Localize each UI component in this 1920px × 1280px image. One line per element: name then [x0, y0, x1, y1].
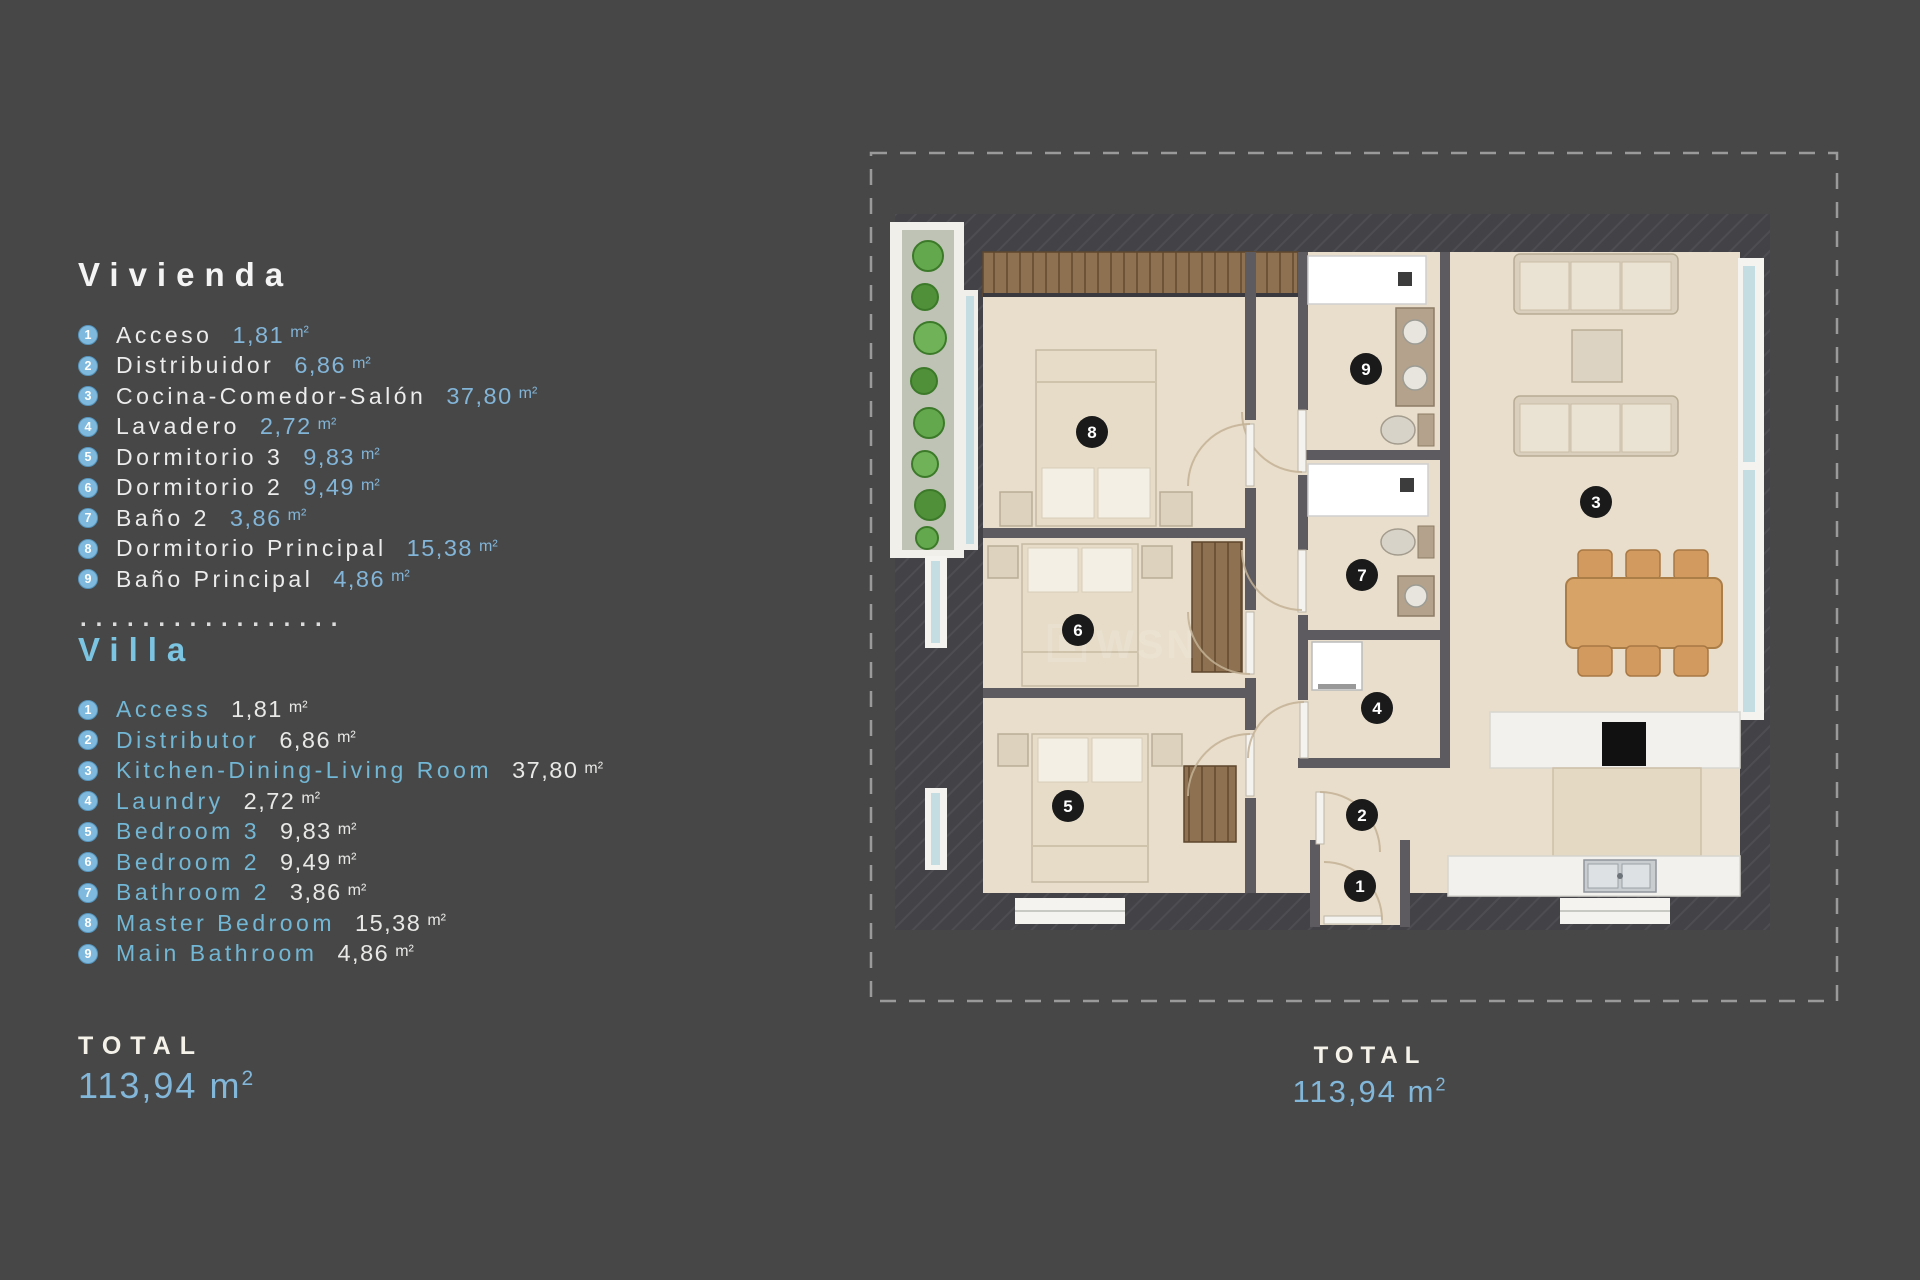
room-label: Laundry [116, 788, 224, 815]
wardrobe-hall-1 [1192, 542, 1242, 672]
room-label: Access [116, 696, 211, 723]
area-unit: m² [584, 760, 603, 778]
list-item: 4Lavadero2,72m² [78, 412, 738, 443]
total-label: TOTAL [78, 1032, 255, 1061]
pillow [1092, 738, 1142, 782]
area-unit: m² [318, 416, 337, 434]
washing-machine-door [1318, 684, 1356, 689]
sofa-cushion [1520, 262, 1569, 310]
room-label: Master Bedroom [116, 910, 335, 937]
room-area: 9,83 [280, 818, 332, 845]
area-unit: m² [288, 507, 307, 525]
list-item: 4Laundry2,72m² [78, 786, 738, 817]
wardrobe-hall-2 [1184, 766, 1236, 842]
room-marker-8: 8 [1076, 416, 1108, 448]
pillow [1082, 548, 1132, 592]
svg-text:7: 7 [1357, 566, 1366, 585]
room-area: 9,49 [303, 474, 355, 501]
list-item: 1Access1,81m² [78, 695, 738, 726]
number-badge: 5 [78, 447, 98, 467]
list-item: 9Main Bathroom4,86m² [78, 939, 738, 970]
room-label: Distribuidor [116, 352, 274, 379]
room-area: 9,83 [303, 444, 355, 471]
svg-text:9: 9 [1361, 360, 1370, 379]
room-area: 15,38 [355, 910, 421, 937]
shower-drain [1398, 272, 1412, 286]
area-unit: m² [479, 538, 498, 556]
toilet-tank [1418, 414, 1434, 446]
legend-panel: Vivienda 1Acceso1,81m² 2Distribuidor6,86… [78, 256, 738, 969]
dotted-separator: ................. [80, 605, 738, 631]
room-area: 6,86 [294, 352, 346, 379]
area-unit: m² [361, 446, 380, 464]
nightstand [1142, 546, 1172, 578]
sofa-cushion [1571, 404, 1620, 452]
nightstand [998, 734, 1028, 766]
list-item: 3Kitchen-Dining-Living Room37,80m² [78, 756, 738, 787]
room-marker-3: 3 [1580, 486, 1612, 518]
washing-machine [1312, 642, 1362, 690]
room-area: 1,81 [231, 696, 283, 723]
room-label: Cocina-Comedor-Salón [116, 383, 426, 410]
svg-text:2: 2 [1357, 806, 1366, 825]
list-item: 8Dormitorio Principal15,38m² [78, 534, 738, 565]
number-badge: 4 [78, 417, 98, 437]
chair [1578, 646, 1612, 676]
sofa-cushion [1622, 404, 1671, 452]
number-badge: 6 [78, 478, 98, 498]
svg-text:3: 3 [1591, 493, 1600, 512]
room-label: Main Bathroom [116, 940, 317, 967]
room-marker-6: 6 [1062, 614, 1094, 646]
number-badge: 7 [78, 508, 98, 528]
villa-list: 1Access1,81m² 2Distributor6,86m² 3Kitche… [78, 695, 738, 970]
room-area: 37,80 [512, 757, 578, 784]
room-area: 3,86 [230, 505, 282, 532]
list-item: 1Acceso1,81m² [78, 320, 738, 351]
room-area: 6,86 [279, 727, 331, 754]
chair [1674, 646, 1708, 676]
villa-title: Villa [78, 631, 738, 669]
number-badge: 9 [78, 569, 98, 589]
room-marker-5: 5 [1052, 790, 1084, 822]
room-label: Distributor [116, 727, 259, 754]
room-label: Dormitorio 3 [116, 444, 283, 471]
number-badge: 3 [78, 386, 98, 406]
room-label: Bedroom 2 [116, 849, 260, 876]
nightstand [1000, 492, 1032, 526]
kitchen-bar [1553, 768, 1701, 856]
total-value: 113,94 m2 [1280, 1074, 1460, 1110]
pillow [1042, 468, 1094, 518]
sink-basin [1622, 864, 1650, 888]
list-item: 2Distribuidor6,86m² [78, 351, 738, 382]
list-item: 7Bathroom 23,86m² [78, 878, 738, 909]
area-unit: m² [352, 355, 371, 373]
vivienda-list: 1Acceso1,81m² 2Distribuidor6,86m² 3Cocin… [78, 320, 738, 595]
page-background: Vivienda 1Acceso1,81m² 2Distribuidor6,86… [0, 0, 1920, 1280]
total-plan: TOTAL 113,94 m2 [1280, 1042, 1460, 1110]
list-item: 8Master Bedroom15,38m² [78, 908, 738, 939]
room-label: Baño Principal [116, 566, 313, 593]
number-badge: 2 [78, 356, 98, 376]
pillow [1028, 548, 1078, 592]
coffee-table [1572, 330, 1622, 382]
dining-set [1566, 550, 1722, 676]
room-label: Dormitorio 2 [116, 474, 283, 501]
toilet [1381, 529, 1415, 555]
sink [1403, 320, 1427, 344]
total-label: TOTAL [1280, 1042, 1460, 1070]
number-badge: 3 [78, 761, 98, 781]
list-item: 2Distributor6,86m² [78, 725, 738, 756]
room-label: Kitchen-Dining-Living Room [116, 757, 492, 784]
room-area: 2,72 [244, 788, 296, 815]
floor-plan: WSN 1 2 3 4 5 6 7 8 9 [850, 140, 1860, 1020]
nightstand [1152, 734, 1182, 766]
nightstand [1160, 492, 1192, 526]
number-badge: 8 [78, 539, 98, 559]
dining-table [1566, 578, 1722, 648]
faucet [1617, 873, 1623, 879]
sink-basin [1588, 864, 1618, 888]
room-label: Dormitorio Principal [116, 535, 387, 562]
number-badge: 9 [78, 944, 98, 964]
room-area: 4,86 [333, 566, 385, 593]
list-item: 6Dormitorio 29,49m² [78, 473, 738, 504]
svg-text:8: 8 [1087, 423, 1096, 442]
building: WSN 1 2 3 4 5 6 7 8 9 [890, 214, 1770, 930]
area-unit: m² [519, 385, 538, 403]
sink [1405, 585, 1427, 607]
total-left: TOTAL 113,94 m2 [78, 1032, 255, 1107]
area-unit: m² [338, 821, 357, 839]
area-unit: m² [338, 851, 357, 869]
vivienda-title: Vivienda [78, 256, 738, 294]
room-marker-1: 1 [1344, 870, 1376, 902]
number-badge: 5 [78, 822, 98, 842]
laundry-fixtures [1312, 642, 1362, 690]
toilet-tank [1418, 526, 1434, 558]
area-unit: m² [427, 912, 446, 930]
number-badge: 4 [78, 791, 98, 811]
shower-drain [1400, 478, 1414, 492]
area-unit: m² [395, 943, 414, 961]
room-marker-9: 9 [1350, 353, 1382, 385]
sofa-cushion [1520, 404, 1569, 452]
area-unit: m² [348, 882, 367, 900]
sink [1403, 366, 1427, 390]
room-label: Acceso [116, 322, 212, 349]
room-marker-2: 2 [1346, 799, 1378, 831]
room-label: Baño 2 [116, 505, 210, 532]
svg-text:1: 1 [1355, 877, 1364, 896]
room-label: Bathroom 2 [116, 879, 270, 906]
svg-text:6: 6 [1073, 621, 1082, 640]
nightstand [988, 546, 1018, 578]
number-badge: 6 [78, 852, 98, 872]
room-area: 15,38 [407, 535, 473, 562]
area-unit: m² [301, 790, 320, 808]
number-badge: 8 [78, 913, 98, 933]
room-area: 1,81 [232, 322, 284, 349]
list-item: 3Cocina-Comedor-Salón37,80m² [78, 381, 738, 412]
list-item: 6Bedroom 29,49m² [78, 847, 738, 878]
svg-text:WSN: WSN [1096, 623, 1198, 667]
cooktop [1602, 722, 1646, 766]
room-marker-7: 7 [1346, 559, 1378, 591]
room-area: 37,80 [446, 383, 512, 410]
number-badge: 1 [78, 700, 98, 720]
area-unit: m² [289, 699, 308, 717]
area-unit: m² [290, 324, 309, 342]
number-badge: 7 [78, 883, 98, 903]
room-area: 4,86 [337, 940, 389, 967]
number-badge: 2 [78, 730, 98, 750]
chair [1626, 550, 1660, 580]
chair [1674, 550, 1708, 580]
room-marker-4: 4 [1361, 692, 1393, 724]
room-area: 2,72 [260, 413, 312, 440]
chair [1578, 550, 1612, 580]
list-item: 5Dormitorio 39,83m² [78, 442, 738, 473]
area-unit: m² [361, 477, 380, 495]
number-badge: 1 [78, 325, 98, 345]
toilet [1381, 416, 1415, 444]
svg-text:5: 5 [1063, 797, 1072, 816]
room-label: Bedroom 3 [116, 818, 260, 845]
total-value: 113,94 m2 [78, 1065, 255, 1107]
chair [1626, 646, 1660, 676]
room-label: Lavadero [116, 413, 240, 440]
pillow [1098, 468, 1150, 518]
svg-text:4: 4 [1372, 699, 1382, 718]
list-item: 9Baño Principal4,86m² [78, 564, 738, 595]
pillow [1038, 738, 1088, 782]
list-item: 5Bedroom 39,83m² [78, 817, 738, 848]
room-area: 9,49 [280, 849, 332, 876]
area-unit: m² [391, 568, 410, 586]
sofa-cushion [1622, 262, 1671, 310]
room-area: 3,86 [290, 879, 342, 906]
list-item: 7Baño 23,86m² [78, 503, 738, 534]
sofa-cushion [1571, 262, 1620, 310]
area-unit: m² [337, 729, 356, 747]
